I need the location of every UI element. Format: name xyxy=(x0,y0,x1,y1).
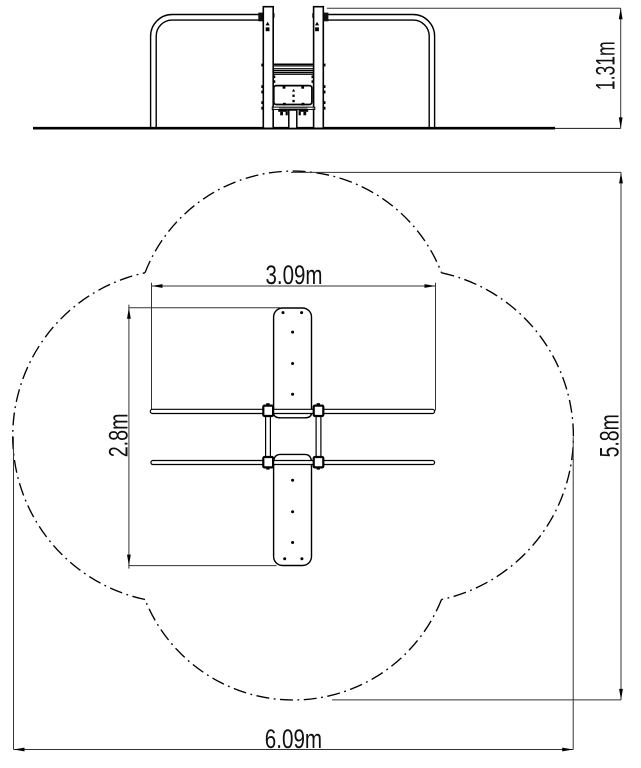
svg-text:6.09m: 6.09m xyxy=(265,724,322,754)
svg-text:3.09m: 3.09m xyxy=(266,260,323,290)
svg-text:2.8m: 2.8m xyxy=(104,414,134,458)
svg-text:1.31m: 1.31m xyxy=(591,41,621,90)
svg-text:5.8m: 5.8m xyxy=(595,414,625,457)
